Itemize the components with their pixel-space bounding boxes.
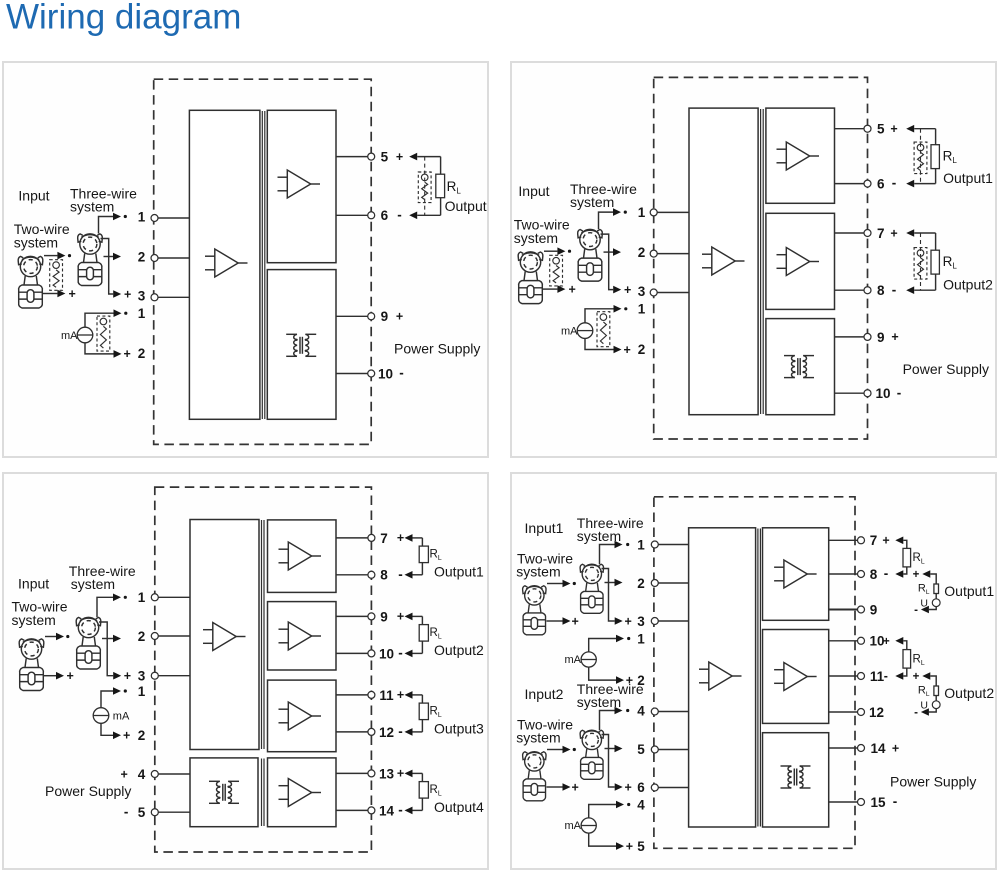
svg-text:+: + [913, 569, 920, 581]
svg-text:11: 11 [870, 669, 885, 684]
svg-text:15: 15 [870, 795, 886, 810]
svg-text:+: + [124, 669, 131, 683]
svg-text:+: + [890, 226, 897, 240]
svg-text:+: + [67, 669, 74, 683]
svg-text:Output2: Output2 [943, 277, 993, 293]
svg-text:+: + [913, 671, 920, 683]
svg-text:-: - [914, 707, 918, 719]
svg-text:5: 5 [381, 150, 389, 165]
svg-text:9: 9 [877, 330, 885, 345]
svg-text:+: + [892, 741, 899, 755]
svg-text:system: system [516, 730, 560, 746]
svg-text:Output2: Output2 [434, 642, 484, 658]
svg-text:Power Supply: Power Supply [45, 783, 131, 799]
svg-text:-: - [398, 646, 403, 661]
svg-text:Output4: Output4 [434, 799, 484, 815]
svg-text:system: system [70, 198, 114, 214]
svg-text:Output: Output [445, 198, 487, 214]
svg-text:system: system [514, 230, 558, 246]
svg-text:+: + [882, 534, 889, 548]
svg-text:+: + [625, 614, 632, 628]
svg-text:4: 4 [138, 767, 146, 782]
svg-text:-: - [398, 803, 403, 818]
svg-text:+: + [123, 729, 130, 743]
svg-text:+: + [625, 780, 632, 794]
svg-text:+: + [572, 614, 579, 628]
svg-text:-: - [397, 207, 402, 222]
svg-text:Output2: Output2 [944, 685, 994, 701]
svg-text:system: system [14, 235, 58, 251]
svg-text:Power Supply: Power Supply [394, 341, 480, 357]
svg-text:9: 9 [381, 309, 389, 324]
svg-text:10: 10 [378, 366, 393, 381]
svg-text:+: + [883, 636, 890, 648]
svg-text:-: - [884, 669, 888, 683]
svg-text:Output3: Output3 [434, 720, 484, 736]
svg-text:14: 14 [379, 803, 395, 818]
svg-text:Wiring diagram: Wiring diagram [6, 0, 241, 37]
svg-text:+: + [890, 122, 897, 136]
svg-text:Output1: Output1 [434, 563, 484, 579]
svg-text:10: 10 [875, 386, 890, 401]
svg-text:system: system [577, 528, 621, 544]
svg-text:13: 13 [379, 766, 395, 781]
svg-text:-: - [914, 604, 918, 616]
svg-text:U: U [920, 598, 928, 610]
svg-text:+: + [396, 310, 403, 324]
svg-text:1: 1 [138, 684, 146, 699]
svg-text:+: + [626, 840, 633, 854]
svg-text:6: 6 [637, 780, 645, 795]
svg-text:1: 1 [138, 590, 146, 605]
svg-text:7: 7 [380, 531, 388, 546]
svg-text:14: 14 [870, 741, 886, 756]
svg-text:+: + [397, 531, 404, 545]
svg-text:5: 5 [877, 122, 885, 137]
svg-text:1: 1 [138, 306, 146, 321]
svg-text:mA: mA [565, 820, 582, 832]
svg-text:2: 2 [637, 576, 645, 591]
svg-text:-: - [897, 385, 902, 400]
svg-text:3: 3 [638, 284, 646, 299]
svg-text:+: + [397, 767, 404, 781]
svg-text:Input: Input [18, 188, 49, 204]
svg-text:1: 1 [637, 631, 645, 646]
svg-text:1: 1 [138, 209, 146, 224]
svg-text:Input1: Input1 [525, 520, 564, 536]
svg-text:+: + [69, 287, 76, 301]
svg-text:10: 10 [379, 646, 394, 661]
svg-text:Power Supply: Power Supply [903, 361, 989, 377]
svg-text:Output1: Output1 [943, 170, 993, 186]
svg-text:+: + [624, 283, 631, 297]
svg-text:-: - [893, 794, 898, 809]
svg-text:mA: mA [113, 711, 130, 723]
svg-text:system: system [577, 694, 621, 710]
svg-text:Input: Input [18, 576, 49, 592]
svg-text:Input: Input [518, 183, 549, 199]
svg-text:system: system [12, 612, 56, 628]
svg-text:3: 3 [138, 669, 146, 684]
svg-text:U: U [920, 700, 928, 712]
svg-text:+: + [124, 347, 131, 361]
svg-text:mA: mA [565, 654, 582, 666]
svg-text:1: 1 [638, 205, 646, 220]
svg-text:4: 4 [637, 797, 645, 812]
svg-text:9: 9 [380, 609, 388, 624]
svg-text:6: 6 [877, 177, 885, 192]
svg-text:-: - [892, 176, 897, 191]
svg-text:4: 4 [637, 703, 645, 718]
svg-text:2: 2 [138, 629, 146, 644]
svg-text:-: - [124, 804, 129, 819]
svg-text:-: - [398, 567, 403, 582]
svg-text:8: 8 [877, 283, 885, 298]
svg-text:+: + [121, 767, 128, 781]
svg-text:3: 3 [637, 614, 645, 629]
svg-text:-: - [892, 282, 897, 297]
svg-text:+: + [572, 780, 579, 794]
svg-text:2: 2 [138, 346, 146, 361]
svg-text:12: 12 [379, 725, 394, 740]
svg-text:1: 1 [637, 537, 645, 552]
svg-text:-: - [884, 566, 889, 581]
svg-text:Input2: Input2 [525, 686, 564, 702]
svg-text:+: + [624, 343, 631, 357]
svg-text:2: 2 [138, 249, 146, 264]
svg-text:2: 2 [638, 245, 646, 260]
svg-text:mA: mA [561, 326, 578, 338]
svg-text:7: 7 [870, 533, 878, 548]
svg-text:9: 9 [870, 602, 878, 617]
svg-text:5: 5 [637, 839, 645, 854]
svg-text:system: system [516, 564, 560, 580]
svg-text:1: 1 [638, 302, 646, 317]
svg-text:5: 5 [637, 742, 645, 757]
svg-text:7: 7 [877, 226, 885, 241]
svg-text:8: 8 [380, 568, 388, 583]
svg-text:5: 5 [138, 805, 146, 820]
svg-text:+: + [397, 688, 404, 702]
svg-text:11: 11 [379, 688, 394, 703]
svg-text:Power Supply: Power Supply [890, 774, 976, 790]
svg-text:+: + [569, 282, 576, 296]
svg-text:3: 3 [138, 288, 146, 303]
svg-text:-: - [398, 724, 403, 739]
svg-text:12: 12 [869, 705, 884, 720]
svg-text:+: + [124, 287, 131, 301]
svg-text:system: system [71, 576, 115, 592]
svg-text:+: + [891, 330, 898, 344]
svg-text:mA: mA [61, 330, 78, 342]
svg-text:+: + [396, 150, 403, 164]
svg-text:Output1: Output1 [944, 583, 994, 599]
svg-text:system: system [570, 194, 614, 210]
svg-text:8: 8 [870, 567, 878, 582]
svg-text:2: 2 [638, 342, 646, 357]
svg-text:6: 6 [381, 208, 389, 223]
svg-text:+: + [397, 610, 404, 624]
svg-text:2: 2 [138, 728, 146, 743]
svg-text:-: - [399, 366, 404, 381]
